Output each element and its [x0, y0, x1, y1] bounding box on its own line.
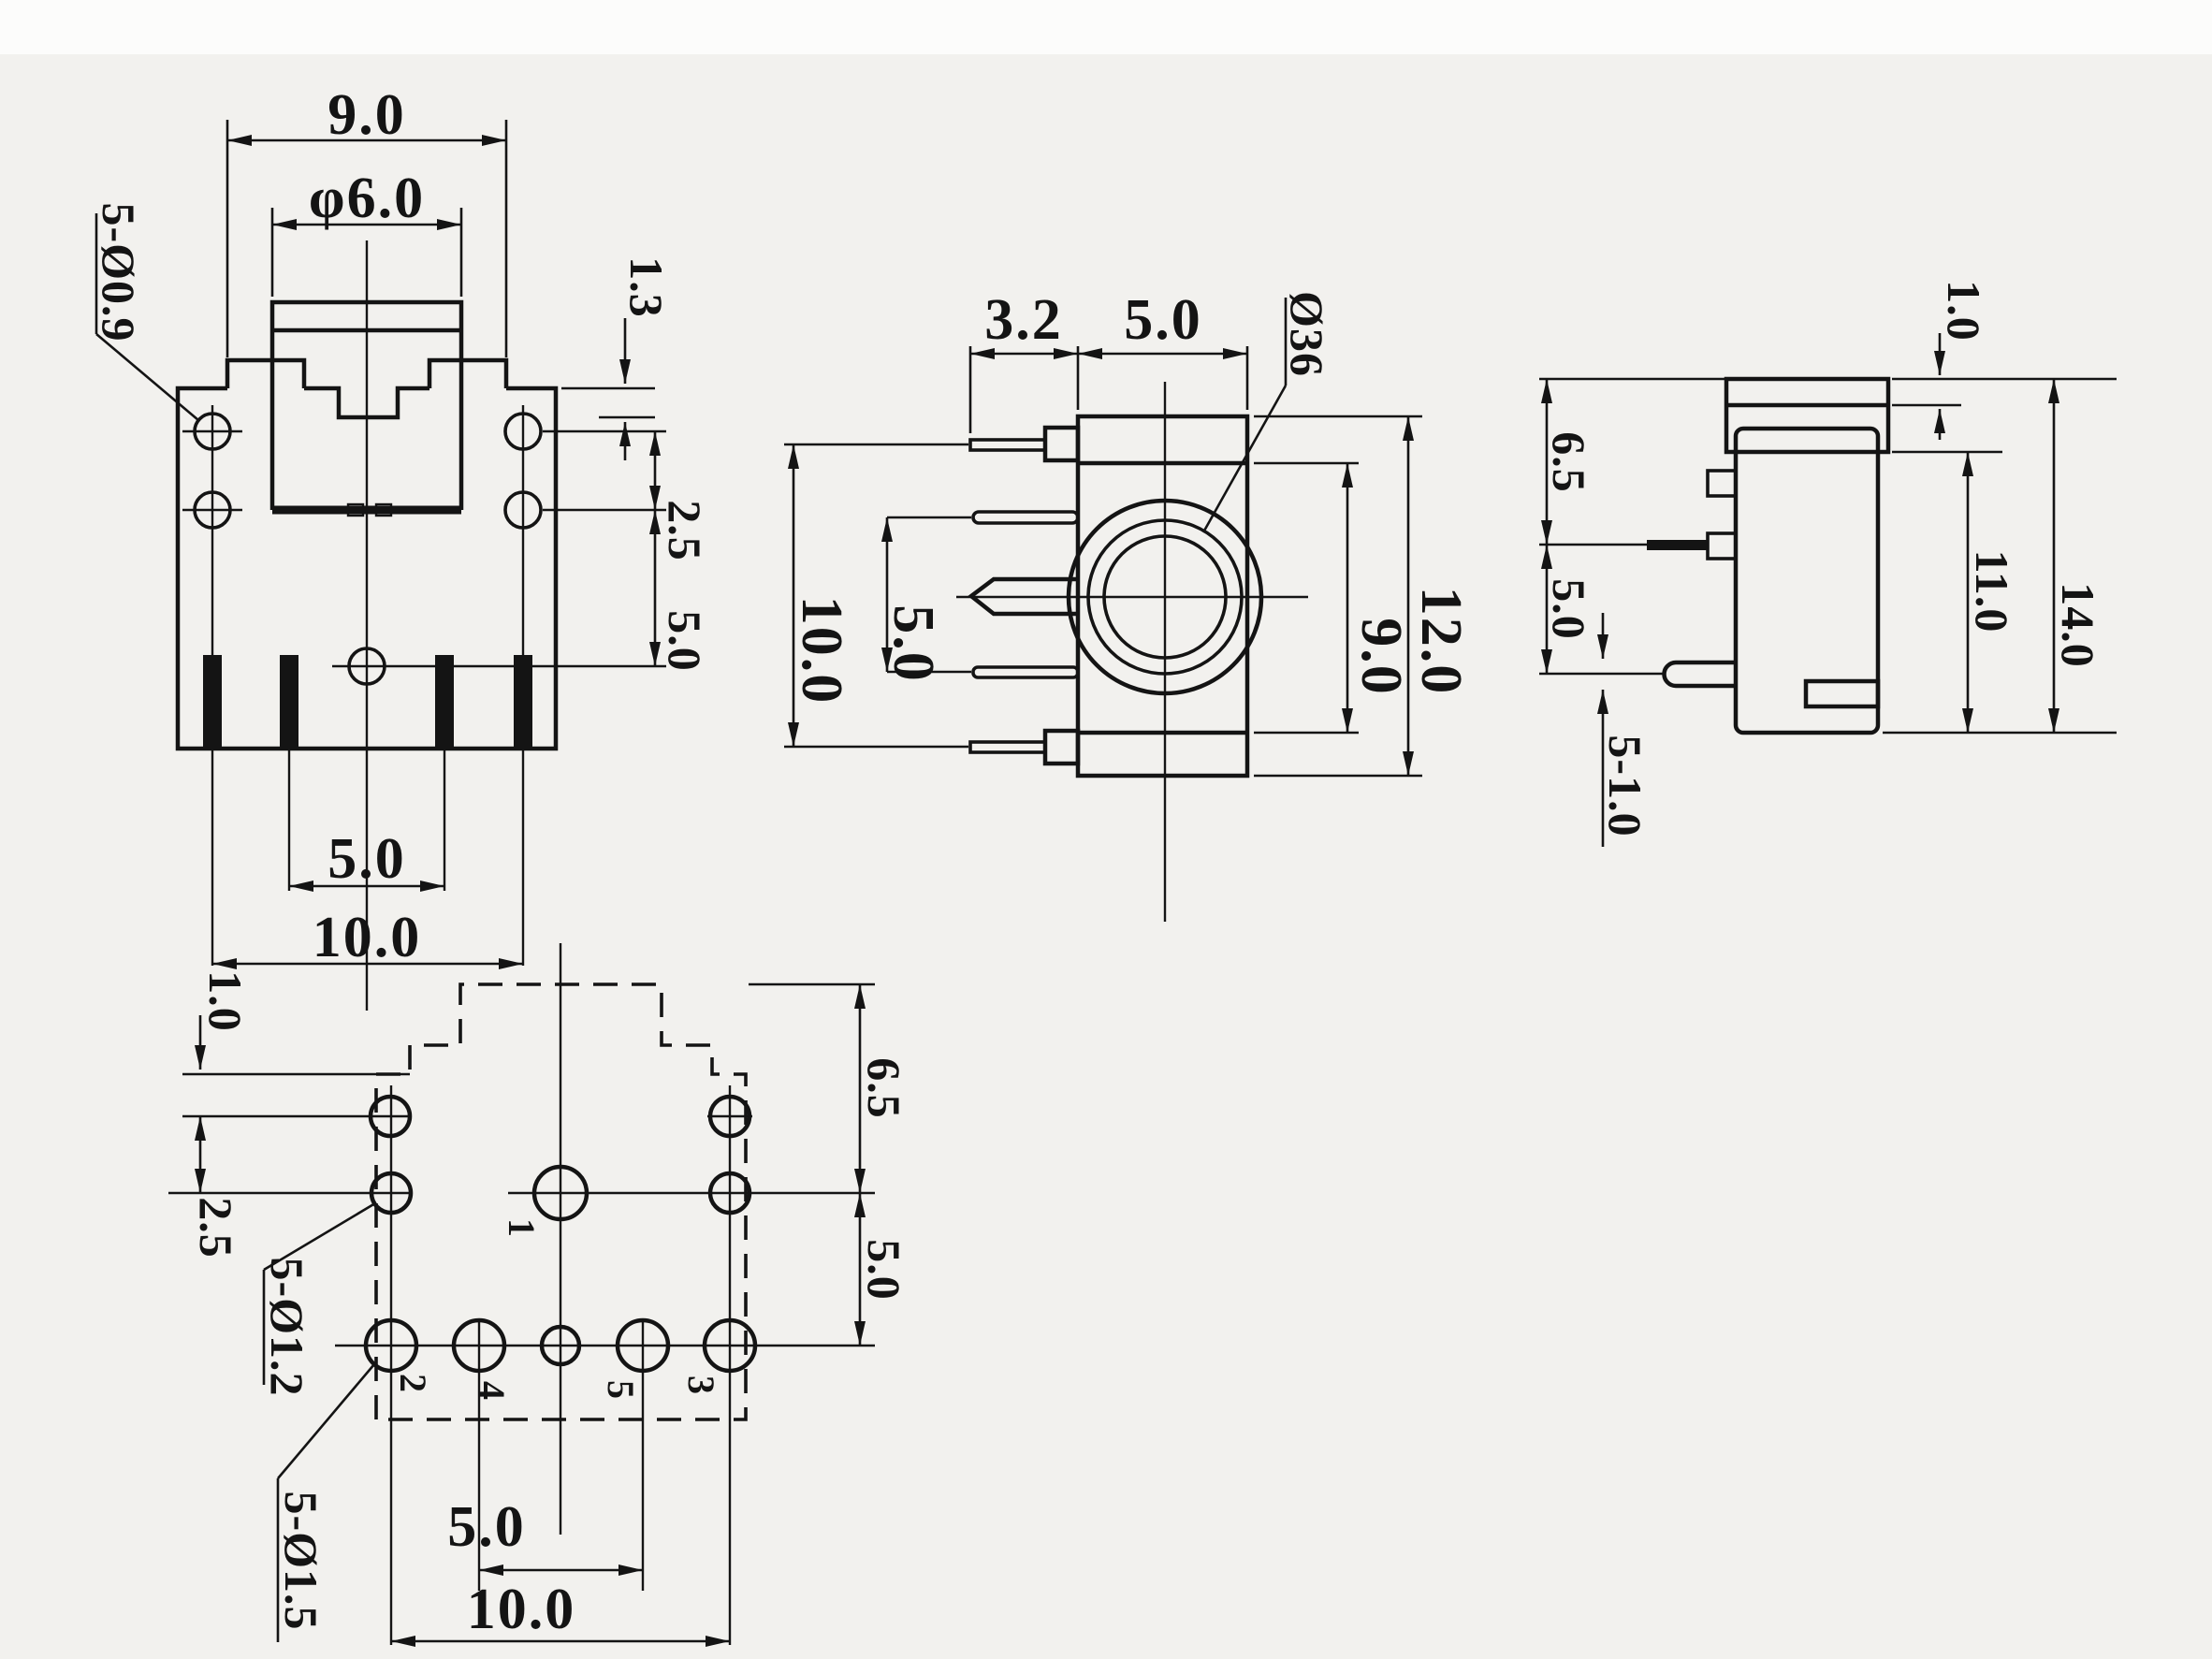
dim-text-end-top-to-pin: 6.5	[1543, 431, 1595, 493]
side-dim-left: 10.0 5.0	[784, 444, 971, 747]
label-text-side-bore: Ø36	[1281, 291, 1333, 377]
dim-text-footprint-top-center: 6.5	[858, 1057, 910, 1119]
footprint-dim-left: 1.0 2.5	[190, 970, 252, 1259]
end-dim-right: 1.0 11.0 14.0	[1883, 280, 2117, 733]
dim-text-side-frame-height: 9.0	[1349, 618, 1413, 696]
label-text-footprint-small-holes: 5-Ø1.2	[261, 1257, 313, 1396]
front-right-ear	[429, 360, 506, 388]
dim-text-side-overall-height: 12.0	[1409, 587, 1473, 696]
label-text-front-mount-holes: 5-Ø0.9	[93, 202, 145, 342]
footprint-pin-numbers: 1 2 4 5 3	[392, 1218, 722, 1400]
dim-text-side-span-inner: 5.0	[881, 604, 945, 683]
dim-text-end-pin-to-leg: 5.0	[1543, 578, 1595, 640]
end-cap	[1726, 379, 1888, 452]
pin-number-5: 5	[600, 1380, 642, 1399]
end-bottom-leg	[1665, 662, 1737, 686]
dim-text-front-top-width: 9.0	[327, 83, 406, 147]
dim-text-front-row-gap: 2.5	[659, 500, 711, 561]
dim-text-end-cap-height: 1.0	[1938, 280, 1990, 342]
footprint-label-large-holes: 5-Ø1.5	[275, 1364, 374, 1642]
dim-text-side-body-width: 5.0	[1124, 288, 1202, 352]
front-view: 9.0 φ6.0 1.3 2	[93, 83, 711, 1011]
technical-drawing-page: 9.0 φ6.0 1.3 2	[0, 0, 2212, 1659]
end-bottom-notch	[1806, 681, 1878, 706]
dim-text-footprint-row1-row2: 2.5	[190, 1197, 242, 1259]
label-text-footprint-large-holes: 5-Ø1.5	[275, 1491, 327, 1630]
dim-text-footprint-edge-row1: 1.0	[199, 970, 252, 1032]
side-pins	[970, 428, 1078, 764]
front-dim-hole-rows: 2.5 5.0	[543, 431, 711, 672]
footprint-label-small-holes: 5-Ø1.2	[261, 1203, 375, 1397]
dim-text-footprint-pitch-outer: 10.0	[467, 1578, 576, 1641]
pin-number-4: 4	[471, 1381, 513, 1400]
connector-dimension-drawing: 9.0 φ6.0 1.3 2	[0, 0, 2212, 1659]
footprint-dim-right: 6.5 5.0	[749, 984, 910, 1346]
dim-text-front-bushing: φ6.0	[309, 167, 425, 230]
dim-text-end-body-height: 11.0	[1966, 550, 2018, 633]
side-label-bore: Ø36	[1203, 291, 1333, 532]
end-tab-lower	[1708, 533, 1736, 559]
end-tab-upper	[1708, 471, 1736, 496]
end-dim-left: 6.5 5.0	[1539, 379, 1724, 674]
dim-text-front-notch-depth: 1.3	[620, 256, 673, 318]
end-view: 6.5 5.0 5-1.0 1.0 11.0 14.0	[1539, 280, 2117, 847]
side-view: 3.2 5.0 10.0 5.0 9	[784, 288, 1473, 922]
front-left-ear	[227, 360, 304, 388]
footprint-view: 1 2 4 5 3 1.0 2.5 6.5 5.0	[168, 943, 910, 1645]
dim-text-side-pin-length: 3.2	[984, 288, 1063, 352]
dim-text-front-row-to-center: 5.0	[659, 610, 711, 672]
dim-text-side-span-outer: 10.0	[790, 596, 853, 706]
dim-text-front-pitch-inner: 5.0	[327, 827, 406, 891]
pin-number-2: 2	[392, 1374, 434, 1392]
dim-text-front-pitch-outer: 10.0	[313, 906, 422, 969]
dim-text-footprint-pitch-inner: 5.0	[447, 1495, 526, 1559]
pin-number-1: 1	[501, 1218, 543, 1237]
pin-number-3: 3	[680, 1375, 722, 1394]
front-hole-symbols	[182, 405, 666, 684]
end-label-leg-thickness: 5-1.0	[1599, 613, 1652, 847]
end-side-pin	[1647, 540, 1708, 550]
side-dim-top: 3.2 5.0	[970, 288, 1247, 433]
dim-text-end-overall-height: 14.0	[2052, 582, 2104, 668]
front-dim-notch-depth: 1.3	[561, 256, 673, 460]
label-text-end-leg-thickness: 5-1.0	[1599, 735, 1652, 837]
dim-text-footprint-center-row3: 5.0	[858, 1239, 910, 1301]
